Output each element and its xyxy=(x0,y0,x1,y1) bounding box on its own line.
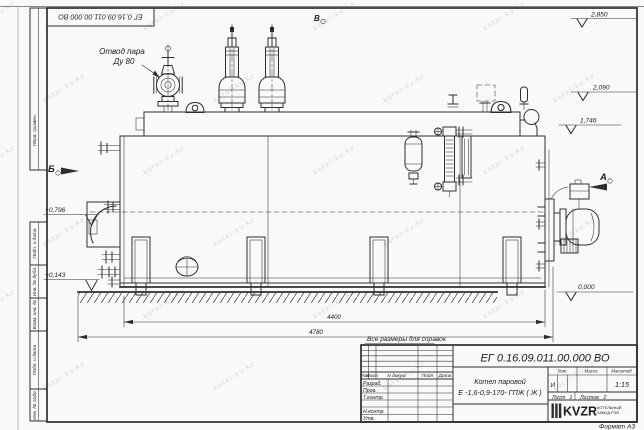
top-designation-stamp: ЕГ 0.16.09.011.00.000 ВО xyxy=(47,8,154,26)
safety-valve xyxy=(259,24,285,112)
tb-row-utv: Утв. xyxy=(363,416,375,422)
gauge-siphon-loop xyxy=(520,110,539,137)
lifting-lug xyxy=(491,102,511,113)
format-label: Формат А3 xyxy=(599,424,635,430)
top-designation-text: ЕГ 0.16.09.011.00.000 ВО xyxy=(58,13,143,22)
side-stamp-label: Инв. № дубл. xyxy=(32,267,38,297)
sheet-frame xyxy=(0,7,644,430)
tb-product-name: Е -1,6-0,9-170- ГПЖ ( Ж ) xyxy=(458,388,541,397)
title-block: Изм Лист N докум. Подп Дата Разраб. Пров… xyxy=(361,345,637,422)
tb-row-nkontr: Н.контр. xyxy=(363,409,385,415)
tb-product-name: Котел паровой xyxy=(474,377,526,386)
tb-col-list: Лист xyxy=(366,373,379,378)
boiler-side-view: Отвод пара Ду 80 Б В А 2,850 xyxy=(44,12,636,344)
ground-line xyxy=(78,292,497,303)
tb-col-data: Дата xyxy=(438,373,452,379)
elevation-mark-0000: 0,000 xyxy=(557,284,633,301)
tb-row-tkontr: Т.контр. xyxy=(363,395,384,401)
tb-scale-label: Масштаб xyxy=(611,369,632,374)
side-stamp-label: Перв. примен. xyxy=(32,114,38,146)
dimension-text: 4400 xyxy=(327,314,341,321)
thermometer-well xyxy=(521,87,528,102)
tb-col-doc: N докум. xyxy=(387,373,406,379)
elevation-text: 2,090 xyxy=(592,85,610,92)
side-stamp-label: Подп. и дата xyxy=(32,345,38,375)
elevation-text: 0,000 xyxy=(578,284,595,291)
view-label: В xyxy=(314,14,320,23)
elevation-text: 2,850 xyxy=(590,12,608,19)
lifting-lug xyxy=(186,103,204,113)
elevation-mark-1746: 1,746 xyxy=(559,118,621,134)
elevation-mark-0143: +0,143 xyxy=(44,272,99,291)
separator-vessel xyxy=(405,130,422,184)
elevation-text: +0,143 xyxy=(45,272,66,279)
steam-collector-drum xyxy=(136,112,520,136)
view-label: Б xyxy=(48,164,55,175)
elevation-mark-0796: +0,796 xyxy=(44,207,99,226)
safety-valve xyxy=(219,24,245,112)
callout-text: Отвод пара xyxy=(99,47,145,56)
tb-row-prov: Пров. xyxy=(363,388,377,394)
front-fittings xyxy=(98,142,120,287)
burner-assembly xyxy=(538,180,599,261)
callout-text: Ду 80 xyxy=(113,57,135,66)
elevation-mark-2090: 2,090 xyxy=(571,85,636,101)
view-marker-b: Б xyxy=(48,164,79,175)
logo-text: KVZR xyxy=(563,405,597,419)
reference-note: Все размеры для справок xyxy=(365,335,447,344)
elevation-mark-2850: 2,850 xyxy=(571,12,636,28)
view-marker-a: А xyxy=(589,172,612,191)
boiler-drawing-sheet: Перв. примен. Подп. и дата Инв. № дубл. … xyxy=(0,0,644,430)
elevation-text: +0,796 xyxy=(45,207,66,214)
tb-lit-label: Лит. xyxy=(556,369,567,374)
note-text: Все размеры для справок xyxy=(367,335,447,343)
boiler-shell xyxy=(90,136,549,287)
dimension-text: 4780 xyxy=(309,329,323,336)
view-label: А xyxy=(599,172,607,183)
water-level-gauge xyxy=(435,127,473,197)
dashed-reference-box xyxy=(477,85,495,101)
steam-outlet-valve xyxy=(154,44,182,112)
elevation-text: 1,746 xyxy=(580,118,597,125)
side-stamp-label: Инв. № подл. xyxy=(32,390,38,420)
tb-lit-value: И xyxy=(551,382,556,389)
tb-col-podp: Подп xyxy=(422,373,434,379)
view-marker-v: В xyxy=(314,14,325,24)
tb-scale-value: 1:15 xyxy=(615,380,630,389)
side-stamp-label: Подп. и дата xyxy=(32,228,38,258)
kvzr-logo: KVZR КОТЕЛЬНЫЙ ЗАВОД РЭП xyxy=(552,404,622,419)
tb-mass-label: Масса xyxy=(585,369,599,374)
tb-designation: ЕГ 0.16.09.011.00.000 ВО xyxy=(480,353,610,365)
side-stamp-label: Взам. инв. № xyxy=(32,300,38,330)
logo-subtext: ЗАВОД РЭП xyxy=(597,410,619,415)
drum-top-fittings xyxy=(448,85,528,112)
steam-outlet-callout: Отвод пара Ду 80 xyxy=(99,47,160,78)
manhole xyxy=(176,257,198,277)
tb-row-razrab: Разраб. xyxy=(363,381,382,387)
